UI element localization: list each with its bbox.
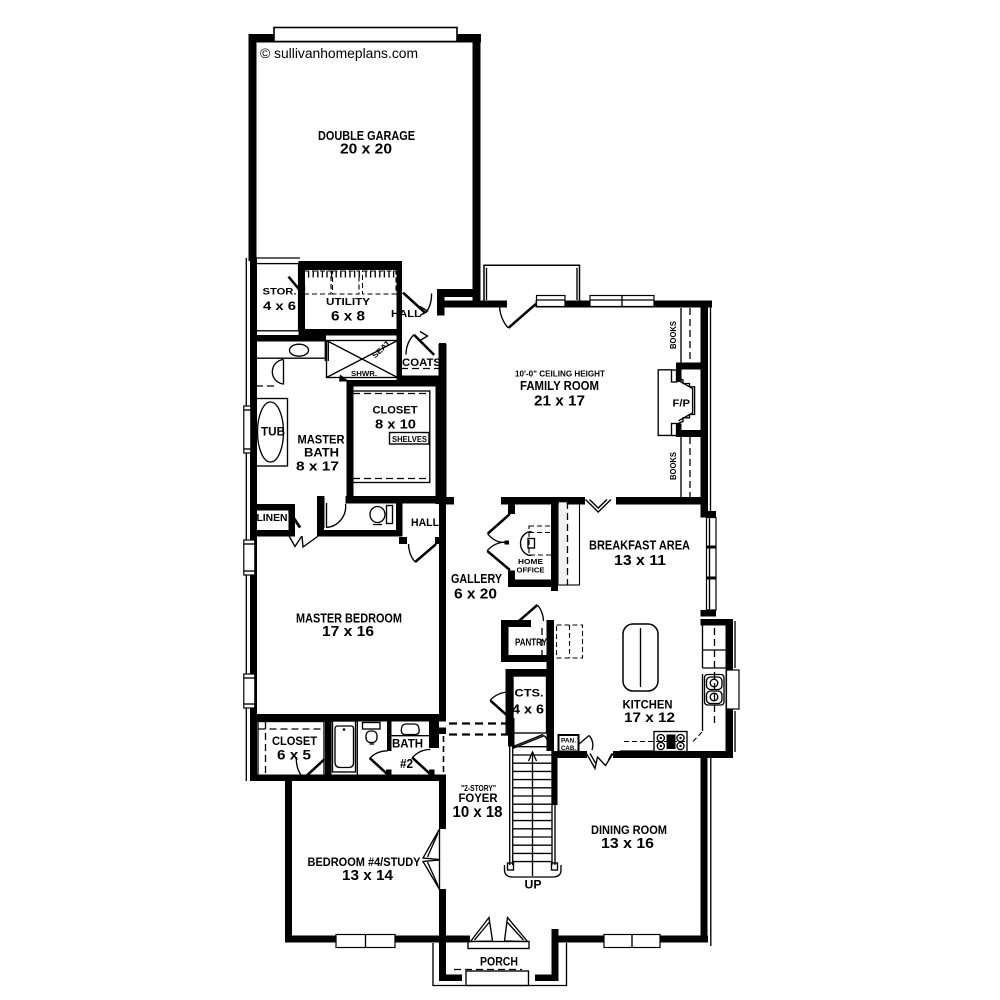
svg-text:CTS.: CTS.: [515, 688, 544, 700]
svg-text:TUB: TUB: [261, 427, 285, 439]
svg-text:FAMILY ROOM: FAMILY ROOM: [520, 379, 599, 393]
svg-text:10 x 18: 10 x 18: [453, 804, 503, 821]
svg-text:FOYER: FOYER: [459, 791, 498, 805]
svg-text:OFFICE: OFFICE: [517, 568, 545, 575]
svg-text:6 x 20: 6 x 20: [454, 586, 497, 603]
svg-text:F/P: F/P: [673, 398, 691, 410]
svg-text:8 x 10: 8 x 10: [375, 417, 416, 432]
svg-text:#2: #2: [400, 757, 413, 771]
svg-text:SHWR.: SHWR.: [351, 369, 377, 378]
svg-text:PORCH: PORCH: [480, 957, 518, 969]
svg-text:HALL: HALL: [391, 309, 421, 320]
svg-text:BATH: BATH: [392, 739, 423, 751]
svg-text:BATH: BATH: [304, 446, 339, 460]
svg-text:4 x 6: 4 x 6: [512, 702, 544, 717]
svg-text:17 x 16: 17 x 16: [322, 624, 374, 640]
svg-text:HALL: HALL: [411, 517, 439, 529]
svg-text:20 x 20: 20 x 20: [340, 141, 392, 158]
svg-text:BEDROOM #4/STUDY: BEDROOM #4/STUDY: [308, 855, 421, 869]
svg-text:BOOKS: BOOKS: [668, 452, 678, 480]
svg-text:BOOKS: BOOKS: [668, 321, 678, 349]
svg-text:COATS: COATS: [402, 357, 441, 369]
svg-text:STOR.: STOR.: [263, 287, 297, 298]
svg-text:PANTRY: PANTRY: [515, 637, 547, 649]
svg-text:4 x 6: 4 x 6: [263, 299, 296, 313]
svg-text:SHELVES: SHELVES: [392, 435, 428, 444]
svg-text:13 x 14: 13 x 14: [342, 868, 393, 884]
svg-text:6 x 8: 6 x 8: [331, 309, 366, 324]
svg-text:LINEN: LINEN: [257, 513, 288, 524]
svg-text:21 x 17: 21 x 17: [534, 393, 585, 410]
svg-text:MASTER: MASTER: [298, 433, 345, 447]
svg-text:PAN.: PAN.: [561, 738, 576, 745]
svg-text:BREAKFAST AREA: BREAKFAST AREA: [589, 539, 690, 553]
svg-text:17 x 12: 17 x 12: [624, 709, 675, 725]
svg-text:CLOSET: CLOSET: [373, 405, 418, 417]
svg-text:13 x 11: 13 x 11: [614, 552, 666, 569]
svg-text:6 x 5: 6 x 5: [277, 747, 311, 763]
svg-text:10'-0" CEILING HEIGHT: 10'-0" CEILING HEIGHT: [515, 370, 605, 379]
svg-text:CAB.: CAB.: [561, 745, 576, 752]
svg-text:UP: UP: [525, 878, 542, 892]
svg-text:8 x 17: 8 x 17: [296, 459, 339, 474]
svg-text:UTILITY: UTILITY: [326, 296, 370, 308]
svg-text:13 x 16: 13 x 16: [601, 836, 654, 852]
svg-text:GALLERY: GALLERY: [451, 572, 503, 586]
svg-text:HOME: HOME: [518, 559, 543, 566]
svg-text:© sullivanhomeplans.com: © sullivanhomeplans.com: [260, 46, 418, 61]
svg-text:DINING ROOM: DINING ROOM: [591, 823, 667, 837]
